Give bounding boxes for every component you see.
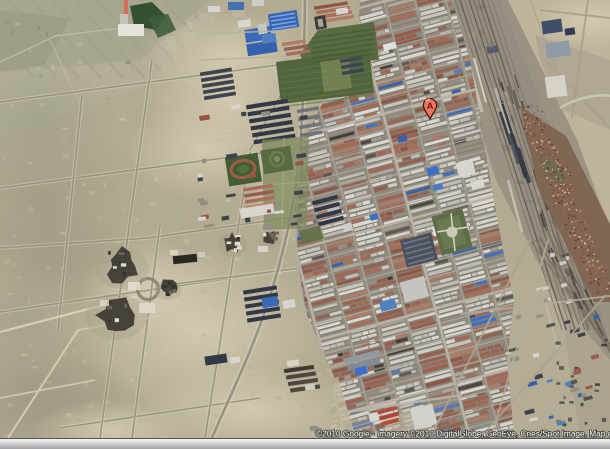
svg-text:©2010 Google - Imagery ©2010 D: ©2010 Google - Imagery ©2010 DigitalGlob…: [316, 429, 610, 439]
svg-text:A: A: [427, 101, 434, 112]
